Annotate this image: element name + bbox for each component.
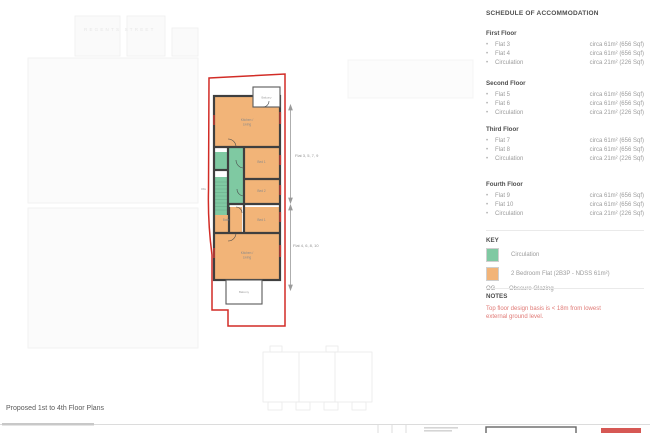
key-label: Circulation [511, 252, 539, 258]
schedule-floor-second: Second Floor •Flat 5circa 61m² (656 Sqf)… [486, 80, 644, 118]
schedule-row: •Circulationcirca 21m² (226 Sqf) [486, 109, 644, 118]
schedule-row: •Flat 5circa 61m² (656 Sqf) [486, 91, 644, 100]
bullet: • [486, 137, 495, 146]
schedule-row: •Circulationcirca 21m² (226 Sqf) [486, 59, 644, 68]
flat-group-bottom-label: Flat 4, 6, 8, 10 [293, 243, 319, 248]
room-label-kitchen-bottom2: Living [243, 256, 252, 260]
og-glazing-label: OG [201, 187, 206, 191]
context-building-outline [263, 346, 372, 410]
bullet: • [486, 100, 495, 109]
schedule-floor-fourth: Fourth Floor •Flat 9circa 61m² (656 Sqf)… [486, 181, 644, 219]
flat-group-top-label: Flat 3, 5, 7, 9 [295, 153, 319, 158]
drawing-title: Proposed 1st to 4th Floor Plans [6, 405, 104, 412]
bullet: • [486, 59, 495, 68]
fine-print-text-placeholder [2, 423, 94, 426]
notes-body: Top floor design basis is < 18m from low… [486, 305, 618, 321]
street-name-label: REGENTS STREET [84, 27, 156, 32]
bullet: • [486, 146, 495, 155]
room-label-bed1-top: Bed 1 [257, 160, 266, 164]
room-label-bath-bottom: Bath [223, 218, 230, 222]
schedule-row: •Flat 7circa 61m² (656 Sqf) [486, 137, 644, 146]
drawing-sheet: REGENTS STREET [0, 0, 650, 433]
room-label-kitchen-top: Kitchen / [241, 118, 254, 122]
schedule-row: •Flat 9circa 61m² (656 Sqf) [486, 192, 644, 201]
floor-heading: Fourth Floor [486, 181, 644, 188]
key-item-flat: 2 Bedroom Flat (2B3P - NDSS 61m²) [486, 267, 644, 281]
schedule-row: •Circulationcirca 21m² (226 Sqf) [486, 210, 644, 219]
og-abbr: OG [486, 286, 497, 292]
circulation-swatch [486, 248, 499, 262]
title-block-box [486, 427, 576, 433]
schedule-row: •Flat 3circa 61m² (656 Sqf) [486, 41, 644, 50]
schedule-row: •Circulationcirca 21m² (226 Sqf) [486, 155, 644, 164]
bullet: • [486, 41, 495, 50]
schedule-row: •Flat 4circa 61m² (656 Sqf) [486, 50, 644, 59]
bullet: • [486, 210, 495, 219]
notes-section: NOTES Top floor design basis is < 18m fr… [486, 293, 644, 321]
balcony-label-bottom: Balcony [239, 290, 250, 294]
room-label-bed1-bottom: Bed 1 [257, 218, 266, 222]
floor-heading: Third Floor [486, 126, 644, 133]
key-title: KEY [486, 237, 644, 244]
notes-title: NOTES [486, 293, 644, 300]
schedule-row: •Flat 6circa 61m² (656 Sqf) [486, 100, 644, 109]
schedule-floor-third: Third Floor •Flat 7circa 61m² (656 Sqf) … [486, 126, 644, 164]
schedule-row: •Flat 10circa 61m² (656 Sqf) [486, 201, 644, 210]
bullet: • [486, 192, 495, 201]
room-label-kitchen-top2: Living [243, 123, 252, 127]
schedule-floor-first: First Floor •Flat 3circa 61m² (656 Sqf) … [486, 30, 644, 68]
bullet: • [486, 201, 495, 210]
flat-group-labels: Flat 3, 5, 7, 9 Flat 4, 6, 8, 10 [293, 153, 319, 248]
flat-group-dimension-lines [289, 105, 293, 290]
flat-swatch [486, 267, 499, 281]
title-block-strip [0, 423, 650, 433]
room-label-kitchen-bottom: Kitchen / [241, 251, 254, 255]
balcony-label-top: Balcony [262, 96, 273, 100]
logo-mark [601, 428, 641, 433]
key-label: 2 Bedroom Flat (2B3P - NDSS 61m²) [511, 271, 610, 277]
key-item-circulation: Circulation [486, 248, 644, 262]
bullet: • [486, 109, 495, 118]
section-divider [486, 288, 644, 289]
key-label: Obscure Glazing [509, 286, 554, 292]
schedule-row: •Flat 8circa 61m² (656 Sqf) [486, 146, 644, 155]
section-divider [486, 230, 644, 231]
floor-heading: First Floor [486, 30, 644, 37]
floor-heading: Second Floor [486, 80, 644, 87]
bullet: • [486, 91, 495, 100]
schedule-title: SCHEDULE OF ACCOMMODATION [486, 10, 644, 17]
bullet: • [486, 155, 495, 164]
room-label-bed2-top: Bed 2 [257, 189, 266, 193]
key-item-obscure-glazing: OG Obscure Glazing [486, 286, 644, 292]
bullet: • [486, 50, 495, 59]
